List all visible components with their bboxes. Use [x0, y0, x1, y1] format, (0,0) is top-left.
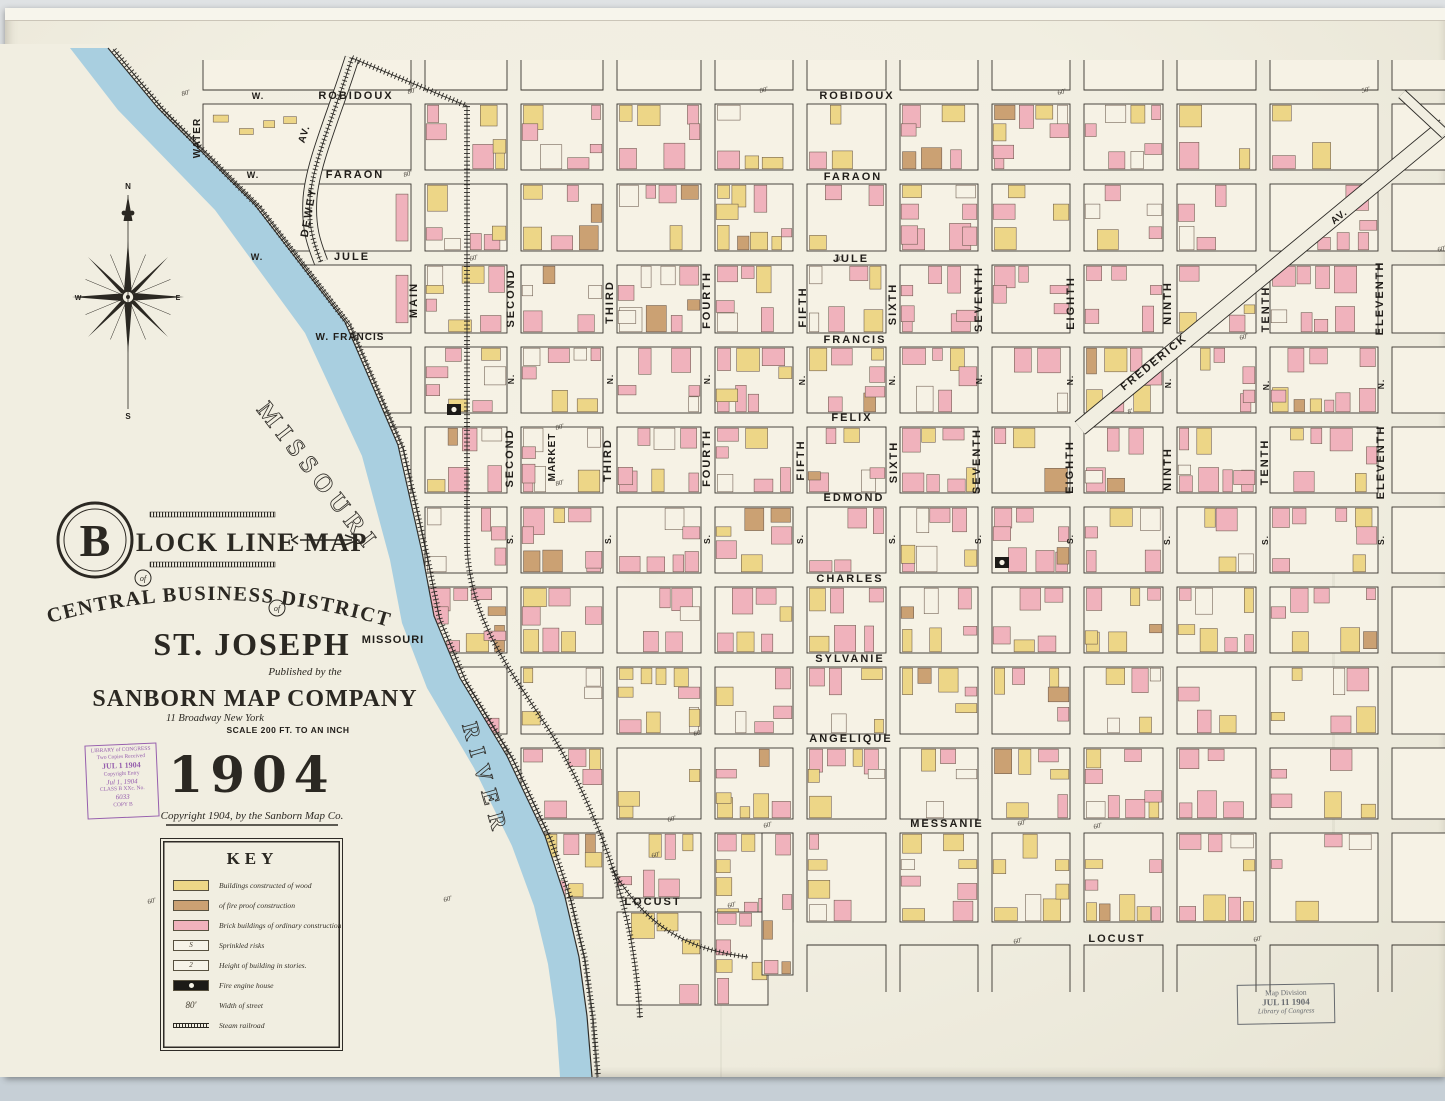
street-width-mark: 60'	[1017, 818, 1028, 828]
building	[524, 227, 542, 250]
map-block	[1084, 60, 1163, 90]
building	[903, 909, 925, 921]
building	[716, 860, 730, 873]
street-label: S.	[1260, 535, 1270, 545]
map-block	[1392, 945, 1445, 992]
building	[1288, 348, 1304, 372]
key-label: Brick buildings of ordinary construction	[219, 921, 341, 930]
street-width-mark: 80'	[403, 169, 414, 179]
street-label: S.	[887, 534, 897, 544]
building	[568, 158, 589, 169]
street-label: LOCUST	[624, 896, 681, 908]
building	[963, 204, 977, 219]
title-copyright: Copyright 1904, by the Sanborn Map Co.	[161, 810, 344, 822]
building	[732, 185, 746, 207]
building	[1291, 428, 1304, 440]
building	[1180, 834, 1202, 849]
building	[578, 470, 600, 492]
building	[762, 348, 785, 366]
building	[775, 668, 790, 689]
street-label: FIFTH	[795, 439, 807, 480]
building	[685, 552, 699, 572]
building	[426, 124, 446, 140]
firehouse-dot	[189, 983, 194, 988]
building	[680, 985, 699, 1004]
building	[488, 466, 502, 492]
building	[683, 940, 700, 954]
building	[1271, 390, 1286, 402]
building	[933, 348, 943, 360]
street-label: TENTH	[1259, 439, 1271, 486]
building	[448, 467, 468, 491]
street-label: N.	[1163, 378, 1173, 389]
building	[1231, 834, 1254, 848]
building	[591, 348, 601, 361]
building	[1335, 307, 1354, 332]
building	[492, 226, 506, 240]
street-label: JULE	[334, 251, 370, 263]
building	[1244, 305, 1255, 314]
building	[618, 311, 636, 324]
building	[864, 310, 883, 332]
building	[718, 225, 730, 250]
map-key-panel: KEY Buildings constructed of woodof fire…	[160, 838, 343, 1051]
street-label: LOCUST	[1088, 933, 1145, 945]
building	[473, 401, 492, 412]
building	[1204, 895, 1226, 921]
street-label: S.	[1065, 534, 1075, 544]
building	[810, 834, 819, 849]
building	[1105, 348, 1127, 372]
building	[1085, 124, 1096, 137]
building	[1038, 348, 1061, 373]
building	[1055, 860, 1068, 871]
building	[1036, 551, 1054, 572]
building	[754, 794, 769, 818]
street-label: N.	[702, 374, 712, 385]
street-label: SEVENTH	[973, 266, 985, 332]
building	[995, 749, 1012, 774]
building	[470, 234, 481, 250]
building	[944, 834, 964, 851]
compass-fleur	[122, 211, 127, 216]
building	[1224, 802, 1244, 818]
building	[762, 634, 773, 652]
building	[718, 151, 740, 169]
building	[869, 185, 884, 205]
building	[264, 121, 275, 128]
building	[1008, 185, 1025, 198]
key-label: Buildings constructed of wood	[219, 881, 312, 890]
building	[1105, 185, 1120, 201]
building	[1120, 895, 1135, 921]
building	[1271, 607, 1286, 618]
building	[903, 428, 921, 452]
building	[522, 285, 533, 295]
building	[930, 508, 950, 522]
building	[1106, 668, 1125, 684]
building	[1109, 152, 1125, 169]
building	[1145, 144, 1162, 155]
building	[771, 508, 791, 522]
building	[1215, 185, 1226, 206]
building	[1058, 707, 1069, 721]
building	[1296, 901, 1319, 921]
building	[1085, 769, 1102, 783]
building	[844, 428, 860, 442]
building	[482, 348, 501, 360]
building	[926, 802, 943, 818]
key-label: Sprinkled risks	[219, 941, 264, 950]
building	[665, 508, 684, 530]
building	[808, 472, 820, 480]
building	[1178, 687, 1199, 701]
building	[620, 185, 639, 206]
title-big-letter: B	[80, 515, 111, 566]
building	[1057, 393, 1067, 412]
key-row: 80'Width of street	[173, 995, 332, 1015]
street-label: THIRD	[602, 438, 614, 482]
building	[1214, 348, 1225, 362]
building	[567, 185, 578, 201]
building	[680, 607, 700, 621]
street-width-mark: 60'	[693, 728, 704, 738]
title-hatch-band	[150, 512, 275, 517]
street-label: EDMOND	[824, 492, 885, 504]
building	[1180, 266, 1200, 281]
building	[810, 588, 826, 611]
building	[763, 921, 772, 940]
building	[1151, 907, 1160, 921]
street-label: ANGELIQUE	[809, 733, 892, 745]
building	[755, 722, 774, 733]
map-block	[900, 60, 978, 90]
building	[1199, 468, 1219, 492]
building	[522, 124, 538, 141]
building	[543, 628, 559, 652]
building	[748, 394, 758, 412]
building	[1208, 749, 1224, 761]
building	[638, 105, 661, 126]
building	[901, 285, 913, 295]
building	[1150, 668, 1160, 681]
building	[993, 204, 1015, 219]
building	[1219, 557, 1236, 572]
key-label: Steam railroad	[219, 1021, 265, 1030]
map-block	[1392, 587, 1445, 653]
street-label: N.	[974, 374, 984, 385]
building	[1097, 230, 1118, 250]
building	[1314, 319, 1328, 332]
building	[1050, 124, 1069, 138]
building	[903, 668, 913, 695]
building	[426, 299, 436, 311]
building	[901, 545, 915, 563]
building	[869, 588, 883, 602]
building	[718, 266, 738, 282]
building	[718, 978, 729, 1004]
building	[1310, 399, 1322, 412]
building	[1178, 204, 1194, 221]
building	[1330, 428, 1352, 451]
building	[732, 588, 753, 614]
building	[522, 464, 535, 483]
building	[577, 399, 597, 412]
building	[901, 860, 915, 870]
building	[948, 479, 965, 492]
building	[1149, 227, 1162, 239]
building	[1148, 588, 1161, 600]
key-swatch-wood	[173, 880, 209, 891]
building	[522, 447, 535, 459]
building	[1330, 749, 1352, 770]
building	[903, 348, 926, 364]
building	[827, 749, 845, 766]
building	[590, 144, 602, 153]
street-label: SYLVANIE	[815, 653, 884, 665]
building	[870, 468, 885, 479]
building	[870, 266, 881, 289]
building	[683, 834, 693, 851]
building	[718, 313, 738, 332]
building	[993, 527, 1011, 541]
building	[1087, 588, 1102, 610]
building	[810, 796, 832, 818]
building	[1243, 367, 1255, 384]
building	[1107, 478, 1124, 492]
building	[921, 148, 941, 169]
building	[1007, 803, 1029, 818]
building	[929, 266, 942, 284]
compass-letter: S	[125, 412, 131, 421]
building	[661, 266, 675, 285]
building	[1301, 313, 1312, 332]
building	[481, 316, 502, 332]
building	[588, 428, 601, 447]
building	[939, 668, 958, 692]
building	[1238, 554, 1253, 572]
building	[781, 229, 791, 237]
building	[489, 266, 505, 292]
key-swatch-sprinkled: S	[173, 940, 209, 951]
building	[776, 834, 791, 855]
key-row: Fire engine house	[173, 975, 332, 995]
building	[660, 588, 670, 608]
building	[689, 473, 699, 492]
building	[666, 632, 683, 652]
building	[641, 668, 652, 684]
building	[1019, 105, 1033, 128]
building	[683, 527, 700, 539]
scanned-map-page: { "palette": { "paper": "#f1eee1", "bloc…	[0, 0, 1445, 1101]
building	[1336, 508, 1347, 521]
title-hatch-band	[150, 562, 275, 567]
building	[618, 792, 639, 807]
building	[428, 480, 446, 492]
street-label: W. FRANCIS	[316, 332, 385, 343]
building	[1058, 795, 1068, 818]
key-swatch-stories: 2	[173, 960, 209, 971]
building	[901, 607, 914, 619]
building	[1013, 668, 1025, 684]
building	[1292, 632, 1308, 652]
building	[1216, 508, 1237, 531]
map-block	[715, 60, 793, 90]
building	[1201, 348, 1211, 370]
compass-letter: W	[75, 295, 82, 302]
building	[1109, 632, 1127, 652]
building	[641, 266, 651, 287]
building	[779, 367, 792, 379]
building	[1331, 716, 1351, 733]
building	[716, 878, 732, 896]
building	[808, 880, 830, 898]
building	[808, 769, 819, 782]
building	[901, 124, 916, 136]
building	[659, 879, 680, 897]
building	[428, 266, 443, 287]
building	[620, 556, 641, 571]
street-width-mark: 60'	[763, 820, 774, 830]
building	[958, 883, 977, 899]
building	[671, 315, 682, 331]
key-swatch-fireproof	[173, 900, 209, 911]
building	[1273, 105, 1292, 121]
building	[545, 801, 567, 818]
street-label: SECOND	[504, 428, 516, 487]
street-label: TENTH	[1260, 286, 1272, 333]
building	[583, 769, 602, 784]
street-label: MAIN	[408, 282, 420, 318]
building	[872, 348, 884, 360]
building	[737, 632, 754, 652]
building	[716, 527, 731, 536]
key-label: Width of street	[219, 1001, 263, 1010]
building	[1043, 899, 1061, 921]
building	[716, 389, 738, 402]
title-published: Published by the	[267, 666, 341, 678]
building	[1271, 712, 1284, 720]
street-label: FRANCIS	[824, 334, 887, 346]
building	[548, 348, 569, 362]
street-label: FARAON	[326, 169, 384, 181]
building	[1085, 204, 1100, 218]
building	[1087, 551, 1097, 572]
building	[445, 239, 461, 250]
building	[1333, 668, 1345, 695]
street-label: ROBIDOUX	[819, 90, 894, 102]
street-label: THIRD	[604, 280, 616, 324]
building	[829, 307, 845, 332]
building	[951, 150, 962, 169]
building	[1234, 471, 1255, 485]
building	[1225, 638, 1237, 652]
building	[1229, 897, 1241, 921]
building	[1178, 625, 1195, 635]
building	[1137, 907, 1150, 921]
building	[1129, 428, 1144, 454]
building	[995, 228, 1017, 250]
building	[1273, 508, 1290, 527]
building	[1209, 834, 1223, 852]
building	[738, 236, 750, 250]
building	[1180, 105, 1202, 127]
building	[656, 668, 666, 684]
building	[993, 145, 1014, 159]
building	[853, 749, 862, 766]
street-label: SEVENTH	[971, 428, 983, 494]
building	[1125, 749, 1142, 761]
building	[1085, 471, 1102, 483]
building	[689, 397, 699, 412]
building	[757, 266, 772, 293]
building	[1180, 476, 1193, 492]
building	[592, 105, 601, 119]
building	[672, 348, 691, 372]
map-block	[900, 945, 978, 992]
key-label: Fire engine house	[219, 981, 274, 990]
building	[484, 367, 506, 385]
building	[426, 385, 440, 396]
building	[1205, 508, 1215, 527]
building	[1197, 237, 1216, 249]
building	[1045, 588, 1063, 602]
map-block	[807, 945, 886, 992]
building	[1099, 904, 1110, 921]
building	[832, 714, 847, 733]
building	[522, 367, 536, 379]
building	[718, 105, 741, 120]
building	[535, 466, 546, 491]
building	[1311, 428, 1322, 443]
building	[1016, 508, 1033, 522]
building	[1048, 687, 1069, 702]
street-width-mark: 60'	[1013, 936, 1024, 946]
building	[810, 636, 830, 652]
street-label: FIFTH	[797, 286, 809, 327]
building	[993, 285, 1006, 303]
building	[448, 428, 457, 445]
building	[1271, 310, 1287, 323]
building	[1316, 266, 1330, 288]
building	[1131, 588, 1140, 605]
building	[426, 285, 443, 293]
street-width-mark: 60'	[1239, 332, 1250, 342]
map-block	[1392, 748, 1445, 819]
map-block	[1392, 347, 1445, 413]
map-block	[992, 945, 1070, 992]
building	[1131, 151, 1144, 168]
building	[646, 306, 666, 332]
building	[959, 860, 977, 869]
building	[1358, 233, 1368, 250]
street-label: S.	[795, 534, 805, 544]
building	[1152, 105, 1161, 120]
building	[1337, 233, 1349, 250]
building	[1039, 749, 1059, 762]
building	[995, 266, 1016, 288]
building	[718, 633, 734, 652]
map-division-stamp: Map Division JUL 11 1904 Library of Cong…	[1237, 983, 1336, 1025]
building	[1112, 266, 1127, 280]
building	[1347, 668, 1369, 691]
building	[426, 228, 442, 240]
building	[868, 769, 885, 778]
building	[1357, 527, 1377, 544]
building	[901, 226, 917, 244]
building	[1360, 220, 1377, 230]
building	[213, 115, 228, 122]
